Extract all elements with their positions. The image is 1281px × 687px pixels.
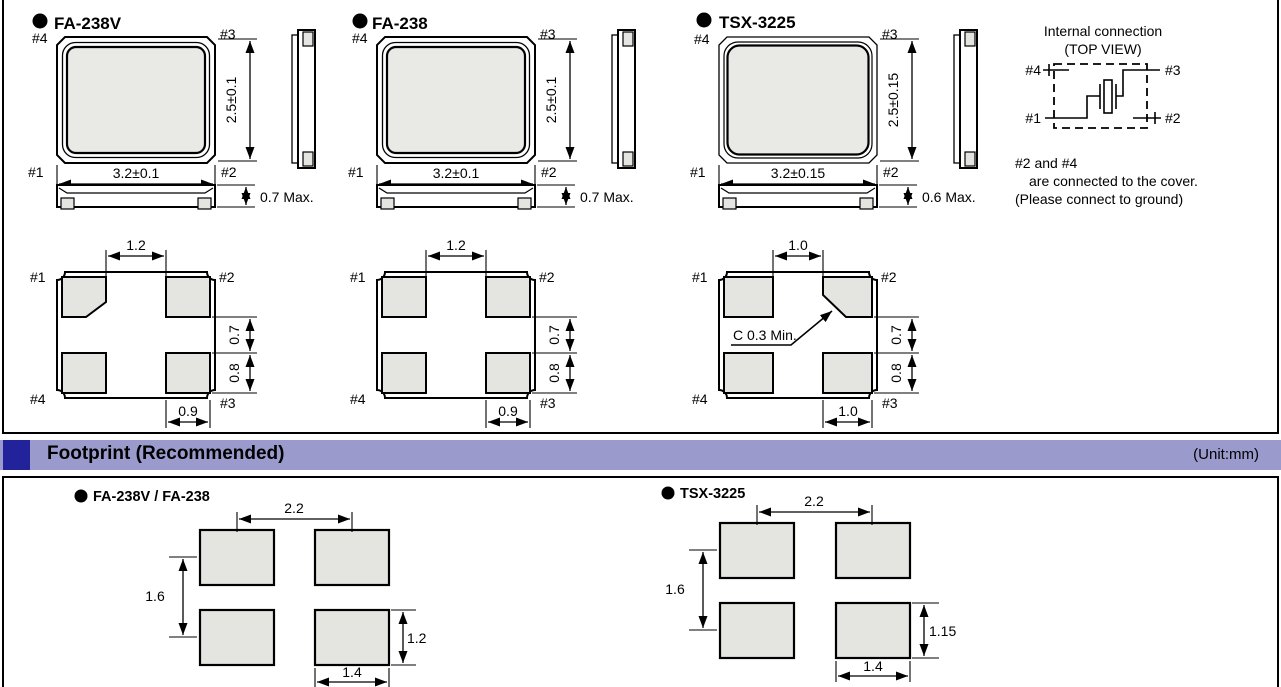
bullet-icon <box>353 14 368 29</box>
pin1-label: #1 <box>350 269 366 285</box>
pin2-label: #2 <box>539 269 555 285</box>
pitch-vertical-dimension: 1.6 <box>145 557 197 637</box>
pad-width-dim: 1.0 <box>838 403 858 419</box>
pad-width-dim: 1.4 <box>863 658 883 674</box>
thickness-dimension: 0.7 Max. <box>217 185 314 207</box>
top-view: #4 #3 #1 #2 <box>690 26 899 180</box>
pin4-label: #4 <box>352 30 368 46</box>
height-dimension: 2.5±0.1 <box>538 39 577 161</box>
v-pitch-dim: 1.6 <box>145 588 165 604</box>
package-name: TSX-3225 <box>719 13 796 32</box>
footprint-pads <box>200 530 389 665</box>
pad-height-dim: 0.8 <box>888 363 904 383</box>
crystal-symbol <box>1100 80 1116 113</box>
footprint-title: FA-238V / FA-238 <box>75 489 210 505</box>
side-view <box>612 30 635 168</box>
pin2-label: #2 <box>221 164 237 180</box>
pad <box>315 530 389 585</box>
top-view-subtitle: (TOP VIEW) <box>1064 41 1141 57</box>
pin1-label: #1 <box>348 164 364 180</box>
footprint-drawing-tsx3225: TSX-3225 2.2 1.6 1.15 <box>640 484 1040 687</box>
pad <box>720 523 794 578</box>
pad-top-dim: 1.2 <box>126 237 146 253</box>
side-profile-view <box>377 185 535 209</box>
footprint-name: TSX-3225 <box>680 486 745 502</box>
footprint-title: TSX-3225 <box>662 486 746 502</box>
thickness-dim-label: 0.7 Max. <box>580 189 634 205</box>
pad-width-dim: 0.9 <box>178 403 198 419</box>
bottom-view: #1 #2 #4 #3 <box>30 269 236 411</box>
pad <box>200 530 274 585</box>
height-dimension: 2.5±0.15 <box>880 39 919 161</box>
pad-height-dimension: 1.15 <box>912 603 956 658</box>
pad-height-dim: 0.8 <box>226 363 242 383</box>
package-name: FA-238V <box>54 14 122 33</box>
thickness-dimension: 0.7 Max. <box>537 185 634 207</box>
pin4-label: #4 <box>350 391 366 407</box>
pin3-label: #3 <box>220 26 236 42</box>
side-profile-view <box>719 185 877 209</box>
pin3-trace <box>1116 70 1160 96</box>
bottom-view: #1 #2 #4 #3 C 0.3 Min. <box>692 269 898 411</box>
note-line-1: #2 and #4 <box>1015 155 1077 171</box>
pin1-label: #1 <box>1025 110 1041 126</box>
pad-height-dim: 0.8 <box>546 363 562 383</box>
footprint-drawing-fa238: FA-238V / FA-238 2.2 1.6 1.2 <box>70 486 460 687</box>
pin1-label: #1 <box>28 164 44 180</box>
pad-4 <box>62 353 106 393</box>
section-title: Footprint (Recommended) <box>47 443 285 465</box>
h-pitch-dim: 2.2 <box>284 500 304 516</box>
pin1-label: #1 <box>690 164 706 180</box>
pin2-label: #2 <box>541 164 557 180</box>
side-profile-view <box>57 185 215 209</box>
height-dim-label: 2.5±0.15 <box>885 73 901 128</box>
note-line-3: (Please connect to ground) <box>1015 191 1183 207</box>
pad-top-dim: 1.0 <box>788 237 808 253</box>
pad-3 <box>166 353 210 393</box>
pin2-label: #2 <box>881 269 897 285</box>
footprint-pads <box>720 523 910 658</box>
side-view <box>292 30 315 168</box>
height-dim-label: 2.5±0.1 <box>223 76 239 123</box>
pin3-label: #3 <box>882 395 898 411</box>
pad-width-dim: 1.4 <box>342 664 362 680</box>
pin3-label: #3 <box>540 26 556 42</box>
package-name: FA-238 <box>372 14 428 33</box>
pad-height-dim: 1.2 <box>407 630 427 646</box>
top-view: #4 #3 #1 #2 <box>28 26 237 180</box>
pad-gap-dim: 0.7 <box>226 325 242 345</box>
pin3-label: #3 <box>1165 62 1181 78</box>
pad-2 <box>486 277 530 317</box>
pad <box>315 610 389 665</box>
pitch-vertical-dimension: 1.6 <box>665 550 717 630</box>
pin1-label: #1 <box>692 269 708 285</box>
width-dim-label: 3.2±0.15 <box>771 165 826 181</box>
pitch-horizontal-dimension: 2.2 <box>237 500 352 532</box>
pad-4 <box>724 353 773 393</box>
pad <box>200 610 274 665</box>
pad-1 <box>382 277 426 317</box>
section-accent-square <box>3 440 30 470</box>
pad-height-dim: 1.15 <box>929 623 956 639</box>
pin3-label: #3 <box>540 395 556 411</box>
pad <box>836 603 910 658</box>
pad <box>720 603 794 658</box>
pad-4 <box>382 353 426 393</box>
pad <box>836 523 910 578</box>
internal-connection-title: Internal connection <box>1044 23 1162 39</box>
pin3-label: #3 <box>882 26 898 42</box>
pad-top-dim: 1.2 <box>446 237 466 253</box>
pad-2 <box>166 277 210 317</box>
pad-1 <box>724 277 773 317</box>
bullet-icon <box>662 487 675 500</box>
pad-3 <box>823 353 872 393</box>
v-pitch-dim: 1.6 <box>665 581 685 597</box>
pin2-label: #2 <box>219 269 235 285</box>
bullet-icon <box>697 13 712 28</box>
side-view <box>954 30 977 168</box>
bottom-view: #1 #2 #4 #3 <box>350 269 556 411</box>
package-drawing-fa238: FA-238 #4 #3 #1 #2 2.5±0.1 3.2±0. <box>337 4 657 434</box>
pad-width-dimension: 1.4 <box>836 658 910 682</box>
pad-width-dimension: 1.4 <box>315 664 389 687</box>
pad-gap-dim: 0.7 <box>888 325 904 345</box>
h-pitch-dim: 2.2 <box>804 493 824 509</box>
internal-connection-diagram: Internal connection (TOP VIEW) #4 #3 #1 … <box>985 8 1281 220</box>
top-view: #4 #3 #1 #2 <box>348 26 557 180</box>
cover-ground-note: #2 and #4 are connected to the cover. (P… <box>1015 155 1198 207</box>
pin4-label: #4 <box>32 30 48 46</box>
pin4-label: #4 <box>692 391 708 407</box>
pin4-label: #4 <box>30 391 46 407</box>
pin3-label: #3 <box>220 395 236 411</box>
pad-height-dimension: 1.2 <box>391 610 427 665</box>
thickness-dim-label: 0.6 Max. <box>922 189 976 205</box>
footprint-name: FA-238V / FA-238 <box>93 489 210 505</box>
pin2-label: #2 <box>1165 110 1181 126</box>
package-drawing-fa238v: FA-238V #4 #3 #1 #2 2.5±0.1 3.2±0 <box>17 4 337 434</box>
package-title: TSX-3225 <box>697 13 796 33</box>
pad-gap-dim: 0.7 <box>546 325 562 345</box>
note-line-2: are connected to the cover. <box>1029 173 1198 189</box>
height-dimension: 2.5±0.1 <box>218 39 257 161</box>
pad-width-dim: 0.9 <box>498 403 518 419</box>
pin4-label: #4 <box>1025 62 1041 78</box>
bullet-icon <box>33 14 48 29</box>
width-dim-label: 3.2±0.1 <box>113 165 160 181</box>
bullet-icon <box>75 490 88 503</box>
pin2-label: #2 <box>883 164 899 180</box>
height-dim-label: 2.5±0.1 <box>543 76 559 123</box>
pin4-label: #4 <box>694 31 710 47</box>
section-header-bar: Footprint (Recommended) (Unit:mm) <box>0 440 1281 470</box>
unit-label: (Unit:mm) <box>1193 446 1259 463</box>
width-dim-label: 3.2±0.1 <box>433 165 480 181</box>
datasheet-page: FA-238V #4 #3 #1 #2 2.5±0.1 3.2±0 <box>0 0 1281 687</box>
package-drawing-tsx3225: TSX-3225 #4 #3 #1 #2 2.5±0.15 3.2 <box>679 4 999 434</box>
chamfer-note: C 0.3 Min. <box>733 327 797 343</box>
thickness-dimension: 0.6 Max. <box>879 185 976 207</box>
thickness-dim-label: 0.7 Max. <box>260 189 314 205</box>
pad-3 <box>486 353 530 393</box>
pitch-horizontal-dimension: 2.2 <box>757 493 872 525</box>
pin1-label: #1 <box>30 269 46 285</box>
